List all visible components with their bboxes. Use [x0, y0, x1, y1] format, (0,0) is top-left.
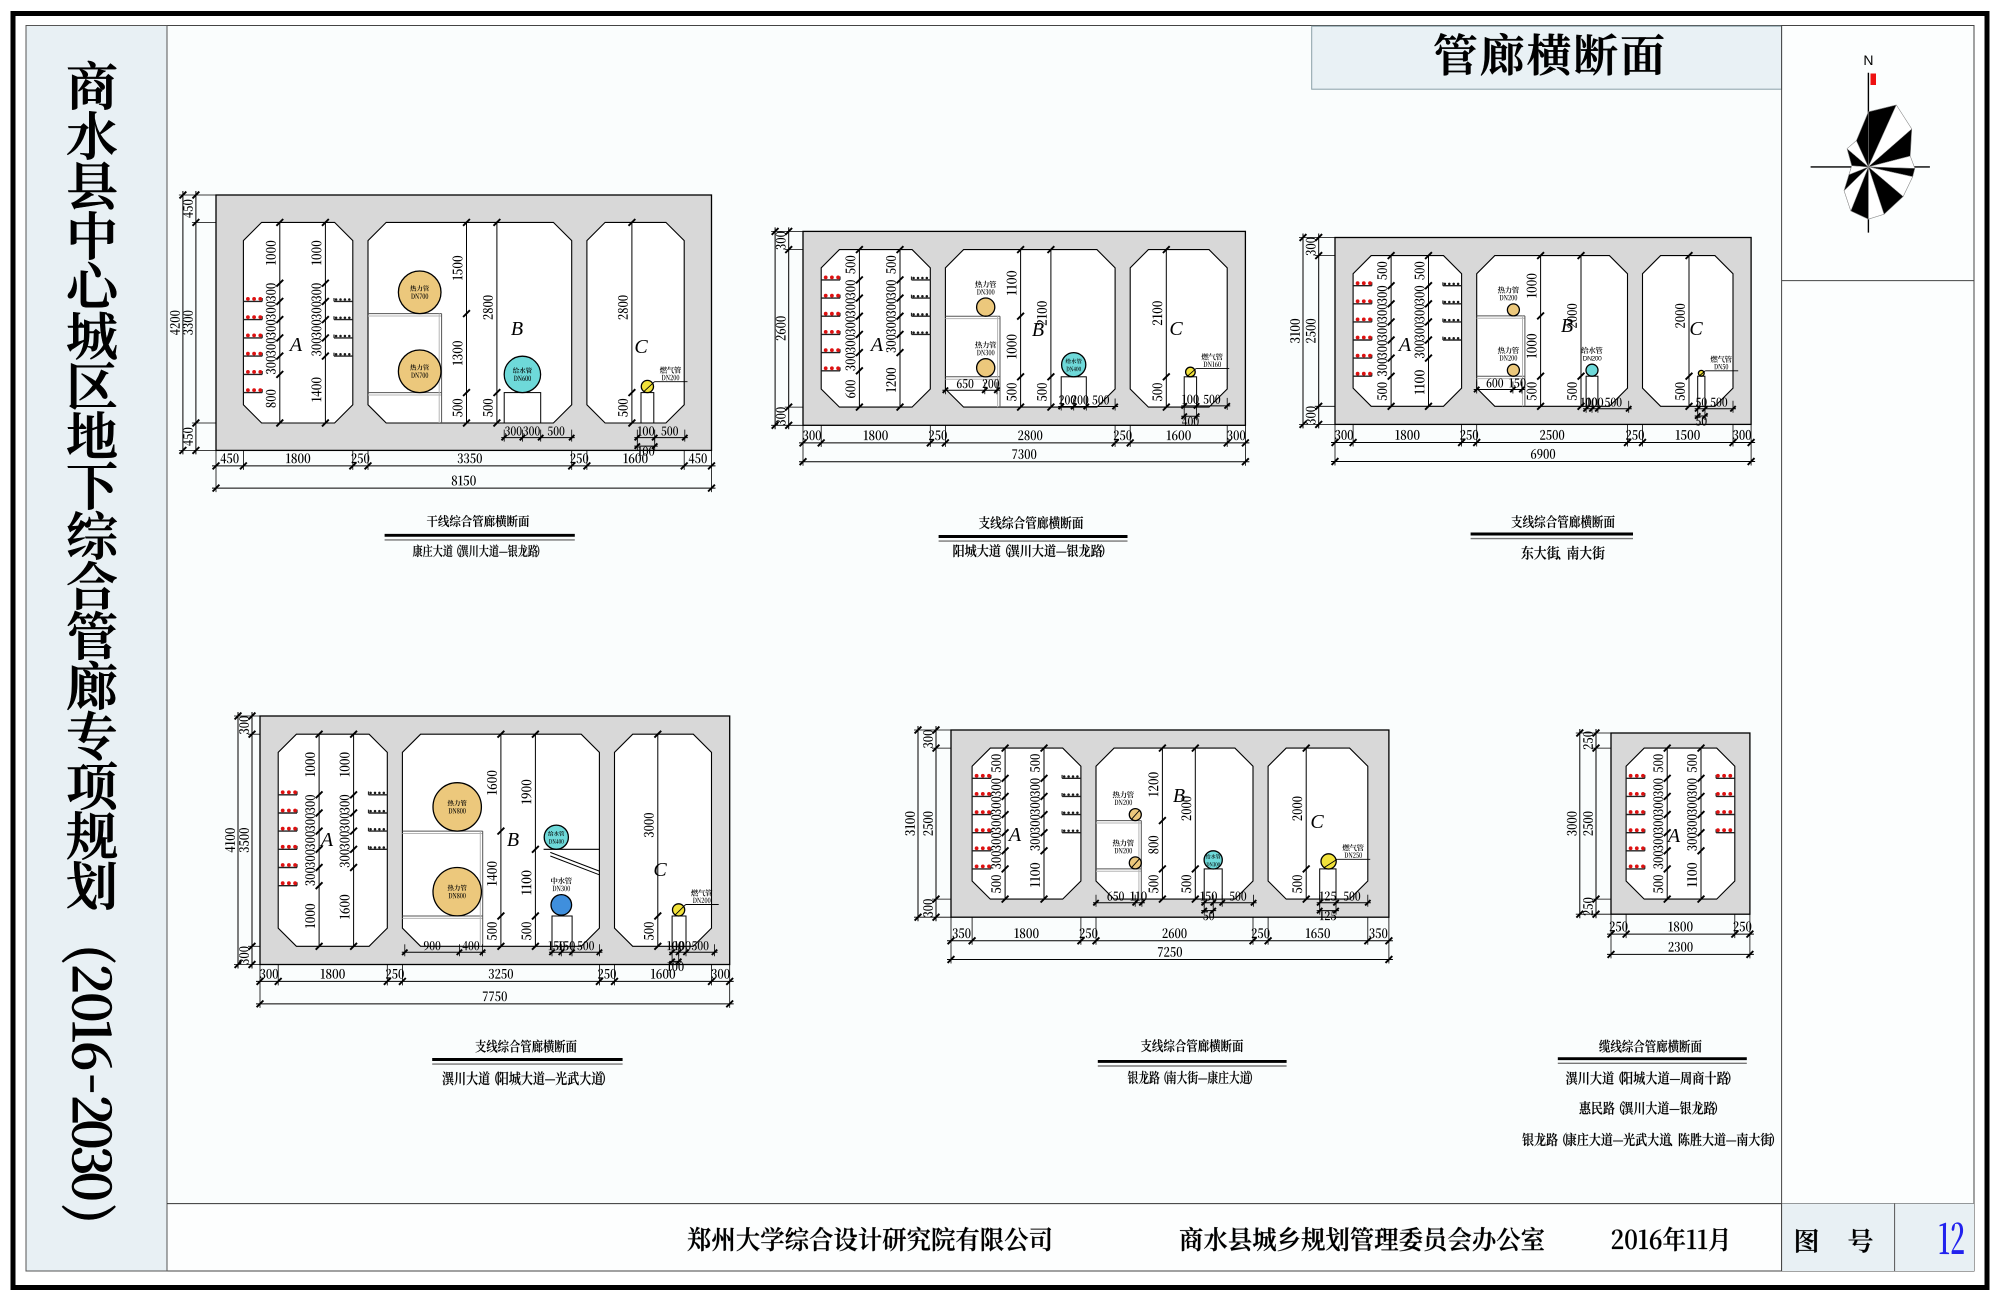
svg-text:N: N — [1863, 52, 1873, 68]
svg-text:B: B — [1173, 785, 1185, 807]
svg-text:DN200: DN200 — [1583, 356, 1602, 363]
svg-text:C: C — [1310, 811, 1324, 833]
svg-text:A: A — [288, 334, 303, 356]
svg-text:B: B — [511, 318, 523, 340]
svg-text:C: C — [1689, 318, 1703, 340]
svg-text:A: A — [1397, 334, 1412, 356]
svg-text:A: A — [1007, 824, 1022, 846]
svg-text:C: C — [1169, 318, 1183, 340]
svg-text:B: B — [1032, 319, 1044, 341]
svg-text:B: B — [1561, 315, 1573, 337]
svg-text:C: C — [634, 336, 648, 358]
svg-text:A: A — [1666, 825, 1681, 847]
svg-text:A: A — [319, 829, 334, 851]
svg-text:B: B — [507, 829, 519, 851]
svg-text:C: C — [653, 859, 667, 881]
svg-text:A: A — [869, 334, 884, 356]
